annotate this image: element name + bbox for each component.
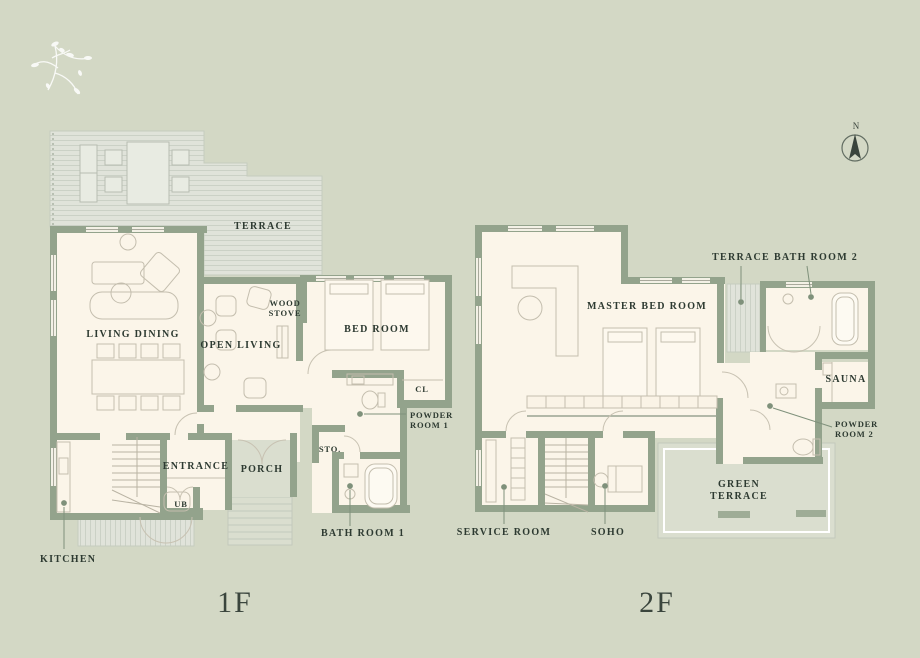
label-service-room: SERVICE ROOM [457, 527, 551, 539]
label-storage: STO. [319, 444, 341, 454]
label-powder-room-1: POWDER ROOM 1 [410, 410, 460, 430]
label-bath-room-2: BATH ROOM 2 [774, 252, 858, 264]
compass-north-label: N [853, 121, 860, 131]
label-entrance: ENTRANCE [163, 461, 230, 473]
label-terrace-1f: TERRACE [234, 221, 292, 233]
label-closet: CL [415, 384, 428, 394]
floor1-title: 1F [217, 586, 253, 620]
label-master-bed-room: MASTER BED ROOM [587, 301, 707, 313]
floor2-plan [475, 225, 875, 538]
label-terrace-2f: TERRACE [712, 252, 770, 264]
floor2-title: 2F [639, 586, 675, 620]
label-soho: SOHO [591, 527, 625, 539]
porch-steps [228, 497, 292, 545]
label-porch: PORCH [241, 464, 284, 476]
label-open-living: OPEN LIVING [200, 340, 281, 352]
plant-sketch-icon [31, 40, 92, 95]
label-powder-room-2: POWDER ROOM 2 [835, 419, 885, 439]
floor-plan-page: TERRACE LIVING DINING OPEN LIVING WOOD S… [0, 0, 920, 658]
label-bath-room-1: BATH ROOM 1 [321, 528, 405, 540]
label-bed-room: BED ROOM [344, 324, 410, 336]
label-kitchen: KITCHEN [40, 554, 96, 566]
compass-icon [842, 134, 868, 161]
label-green-terrace: GREEN TERRACE [703, 479, 775, 503]
label-unit-bath: UB [174, 499, 187, 509]
terrace2-deck [727, 284, 760, 352]
label-living-dining: LIVING DINING [86, 329, 179, 341]
label-sauna: SAUNA [826, 374, 867, 386]
label-wood-stove: WOOD STOVE [264, 298, 306, 318]
lower-deck [78, 517, 194, 546]
